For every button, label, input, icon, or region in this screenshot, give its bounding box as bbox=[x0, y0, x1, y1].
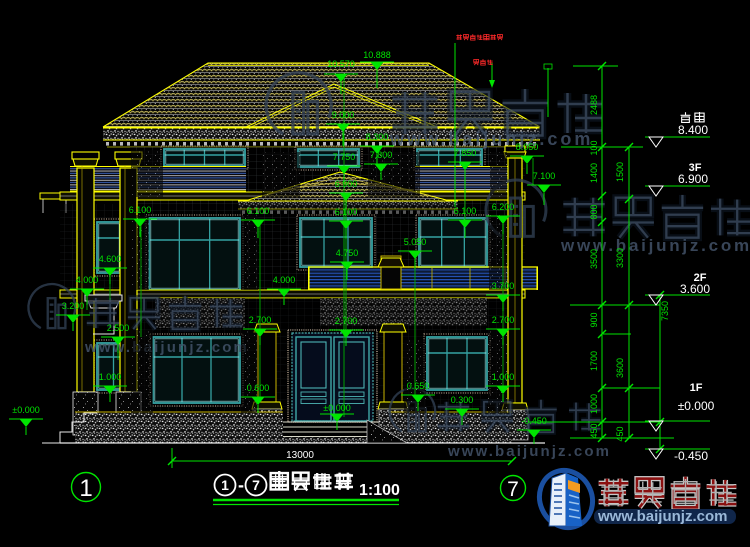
svg-text:3.200: 3.200 bbox=[62, 301, 85, 311]
svg-text:4.750: 4.750 bbox=[336, 248, 359, 258]
svg-text:6.200: 6.200 bbox=[492, 202, 515, 212]
svg-text:3600: 3600 bbox=[615, 358, 625, 378]
svg-text:1: 1 bbox=[221, 477, 229, 493]
svg-text:1.000: 1.000 bbox=[492, 372, 515, 382]
svg-text:1400: 1400 bbox=[589, 163, 599, 183]
svg-text:6.900: 6.900 bbox=[335, 179, 358, 189]
svg-text:www.baijunjz.com: www.baijunjz.com bbox=[84, 339, 249, 356]
svg-text:8.300: 8.300 bbox=[366, 132, 389, 142]
svg-text:7350: 7350 bbox=[660, 301, 670, 321]
svg-text:www.baijunjz.com: www.baijunjz.com bbox=[447, 443, 611, 460]
svg-text:www.baijunjz.com: www.baijunjz.com bbox=[389, 129, 593, 149]
svg-text:±0.000: ±0.000 bbox=[678, 399, 715, 413]
svg-text:7.100: 7.100 bbox=[533, 171, 556, 181]
svg-text:1500: 1500 bbox=[615, 162, 625, 182]
svg-text:6.100: 6.100 bbox=[454, 206, 477, 216]
svg-text:450: 450 bbox=[615, 426, 625, 441]
svg-text:8.400: 8.400 bbox=[678, 123, 708, 137]
svg-text:5.050: 5.050 bbox=[404, 237, 427, 247]
svg-text:4.600: 4.600 bbox=[99, 254, 122, 264]
svg-text:900: 900 bbox=[589, 312, 599, 327]
svg-text:1.000: 1.000 bbox=[99, 372, 122, 382]
svg-text:1:100: 1:100 bbox=[359, 482, 400, 499]
svg-text:100: 100 bbox=[589, 140, 599, 155]
svg-text:6.900: 6.900 bbox=[678, 172, 708, 186]
svg-text:2.500: 2.500 bbox=[107, 323, 130, 333]
svg-text:1700: 1700 bbox=[589, 351, 599, 371]
svg-text:1F: 1F bbox=[690, 382, 703, 394]
svg-text:-0.450: -0.450 bbox=[674, 449, 708, 463]
svg-text:1000: 1000 bbox=[589, 394, 599, 414]
svg-text:www.baijunjz.com: www.baijunjz.com bbox=[597, 508, 727, 525]
svg-text:4.000: 4.000 bbox=[273, 275, 296, 285]
svg-text:3300: 3300 bbox=[615, 248, 625, 268]
svg-text:-0.450: -0.450 bbox=[521, 416, 547, 426]
svg-text:6.100: 6.100 bbox=[335, 207, 358, 217]
svg-text:3500: 3500 bbox=[589, 249, 599, 269]
svg-text:2.700: 2.700 bbox=[335, 316, 358, 326]
svg-text:8.050: 8.050 bbox=[516, 142, 539, 152]
svg-text:7.750: 7.750 bbox=[333, 152, 356, 162]
svg-text:7: 7 bbox=[507, 478, 519, 501]
svg-text:800: 800 bbox=[589, 204, 599, 219]
svg-text:6.100: 6.100 bbox=[129, 205, 152, 215]
svg-text:4.000: 4.000 bbox=[76, 275, 99, 285]
svg-text:±0.000: ±0.000 bbox=[323, 403, 350, 413]
svg-text:-: - bbox=[238, 475, 244, 495]
svg-text:6.100: 6.100 bbox=[247, 206, 270, 216]
svg-text:9.000: 9.000 bbox=[332, 110, 355, 120]
svg-text:3.700: 3.700 bbox=[492, 281, 515, 291]
svg-text:7: 7 bbox=[252, 477, 260, 493]
svg-text:2488: 2488 bbox=[589, 95, 599, 115]
svg-text:10.570: 10.570 bbox=[327, 59, 355, 69]
svg-text:13000: 13000 bbox=[286, 450, 314, 461]
svg-text:0.300: 0.300 bbox=[451, 395, 474, 405]
svg-text:1: 1 bbox=[79, 475, 92, 502]
svg-text:2.700: 2.700 bbox=[492, 315, 515, 325]
svg-text:0.600: 0.600 bbox=[247, 383, 270, 393]
svg-text:0.650: 0.650 bbox=[407, 381, 430, 391]
svg-text:7.800: 7.800 bbox=[370, 150, 393, 160]
svg-text:2.700: 2.700 bbox=[249, 315, 272, 325]
svg-text:10.888: 10.888 bbox=[363, 50, 391, 60]
svg-text:±0.000: ±0.000 bbox=[12, 405, 39, 415]
svg-text:450: 450 bbox=[589, 423, 599, 438]
svg-text:3.600: 3.600 bbox=[680, 282, 710, 296]
svg-text:7.850: 7.850 bbox=[454, 148, 477, 158]
